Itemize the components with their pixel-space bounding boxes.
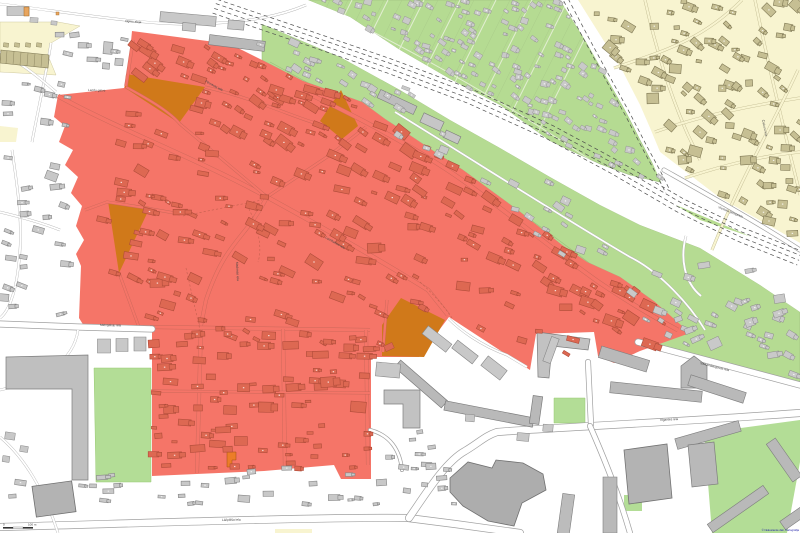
- svg-text:© Nekustamie dati, Kartogrāfij: © Nekustamie dati, Kartogrāfija: [762, 528, 800, 532]
- svg-text:Melngalvju iela: Melngalvju iela: [100, 323, 121, 327]
- svg-text:Lazdu gatve: Lazdu gatve: [88, 88, 106, 93]
- svg-text:Lāčplēša iela: Lāčplēša iela: [222, 518, 241, 522]
- svg-text:100 m: 100 m: [28, 523, 37, 527]
